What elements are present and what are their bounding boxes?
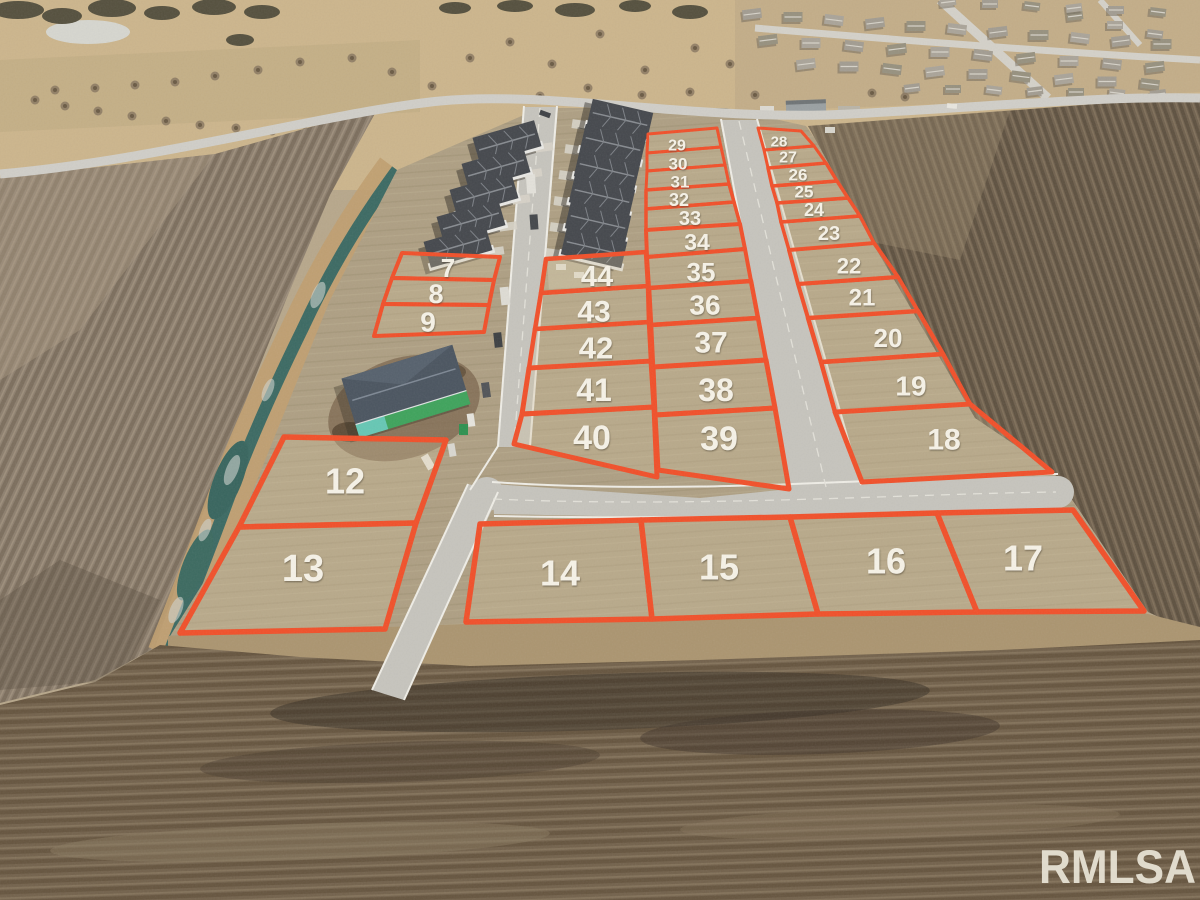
tree-cluster bbox=[42, 8, 82, 24]
vehicle bbox=[947, 103, 957, 109]
small-house bbox=[945, 23, 967, 37]
lot-34-number: 34 bbox=[684, 229, 710, 255]
small-house bbox=[822, 14, 844, 28]
tree-cluster bbox=[439, 2, 471, 14]
small-house bbox=[1105, 21, 1123, 31]
vehicle bbox=[493, 332, 503, 348]
small-house bbox=[1106, 6, 1124, 16]
vehicle bbox=[825, 127, 835, 133]
lot-20-number: 20 bbox=[874, 323, 903, 353]
lot-9-number: 9 bbox=[420, 307, 436, 338]
lot-8-number: 8 bbox=[428, 279, 443, 309]
tree-cluster bbox=[555, 3, 595, 17]
vehicle bbox=[500, 287, 511, 306]
small-house bbox=[943, 85, 961, 95]
lot-24-number: 24 bbox=[804, 200, 824, 220]
tree-cluster bbox=[672, 5, 708, 19]
small-house bbox=[905, 21, 926, 33]
vehicle bbox=[526, 174, 536, 194]
small-house bbox=[782, 12, 803, 24]
small-house bbox=[1109, 35, 1131, 49]
aerial-lot-map-photo: 7891213141516171819202122232425262728293… bbox=[0, 0, 1200, 900]
lot-21-number: 21 bbox=[849, 285, 876, 312]
lot-36-number: 36 bbox=[689, 290, 720, 321]
lot-44-number: 44 bbox=[581, 261, 613, 293]
lot-29-number: 29 bbox=[668, 138, 686, 155]
lot-35-number: 35 bbox=[687, 257, 716, 287]
small-house bbox=[1096, 77, 1117, 89]
small-house bbox=[1028, 30, 1049, 42]
small-house bbox=[838, 62, 859, 74]
lot-42-number: 42 bbox=[579, 331, 613, 366]
small-house bbox=[1151, 39, 1172, 51]
small-house bbox=[967, 69, 988, 81]
small-house bbox=[980, 0, 998, 10]
lot-39-number: 39 bbox=[700, 420, 738, 458]
portable-toilet bbox=[459, 424, 468, 435]
lot-19-number: 19 bbox=[895, 371, 926, 402]
small-house bbox=[923, 65, 945, 79]
lot-38-number: 38 bbox=[698, 372, 734, 408]
tree-cluster bbox=[226, 34, 254, 46]
lot-43-number: 43 bbox=[577, 296, 610, 329]
tree-cluster bbox=[497, 0, 533, 12]
lot-30-number: 30 bbox=[669, 155, 688, 174]
lot-17-number: 17 bbox=[1003, 538, 1043, 579]
lot-37-number: 37 bbox=[694, 327, 727, 360]
lot-22-number: 22 bbox=[837, 254, 861, 279]
lot-25-number: 25 bbox=[795, 183, 814, 202]
lot-40-number: 40 bbox=[573, 419, 611, 457]
small-house bbox=[929, 47, 950, 59]
lot-31-number: 31 bbox=[671, 173, 690, 192]
small-house bbox=[880, 63, 902, 77]
small-house bbox=[1058, 56, 1079, 68]
tree-cluster bbox=[244, 5, 280, 19]
lot-32-number: 32 bbox=[669, 190, 689, 210]
vehicle bbox=[529, 214, 538, 230]
small-house bbox=[986, 26, 1008, 40]
small-house bbox=[740, 8, 762, 22]
lot-18-number: 18 bbox=[927, 424, 960, 457]
lot-41-number: 41 bbox=[576, 372, 612, 408]
small-house bbox=[1052, 73, 1074, 87]
small-house bbox=[794, 58, 816, 72]
small-house bbox=[756, 34, 778, 48]
small-house bbox=[1068, 32, 1090, 46]
lot-16-number: 16 bbox=[866, 541, 906, 582]
lot-27-number: 27 bbox=[779, 150, 797, 167]
lot-28-number: 28 bbox=[771, 134, 788, 151]
lot-14-number: 14 bbox=[540, 553, 580, 594]
lot-23-number: 23 bbox=[818, 223, 840, 245]
tree-cluster bbox=[144, 6, 180, 20]
lot-12-number: 12 bbox=[325, 461, 365, 502]
small-house bbox=[800, 38, 821, 50]
tree-cluster bbox=[619, 0, 651, 12]
bottom-plowed-field bbox=[0, 613, 1200, 900]
small-house bbox=[842, 40, 864, 54]
small-house bbox=[1009, 70, 1031, 84]
lot-26-number: 26 bbox=[789, 166, 808, 185]
small-house bbox=[1143, 61, 1165, 75]
small-house bbox=[885, 43, 907, 57]
small-house bbox=[1014, 52, 1036, 66]
lot-13-number: 13 bbox=[282, 548, 324, 590]
rmlsa-watermark: RMLSA bbox=[1035, 839, 1200, 894]
small-house bbox=[1100, 58, 1122, 72]
small-house bbox=[971, 49, 993, 63]
small-house bbox=[863, 17, 885, 31]
lot-15-number: 15 bbox=[699, 547, 739, 588]
lot-33-number: 33 bbox=[679, 208, 701, 230]
small-house bbox=[1138, 78, 1160, 92]
